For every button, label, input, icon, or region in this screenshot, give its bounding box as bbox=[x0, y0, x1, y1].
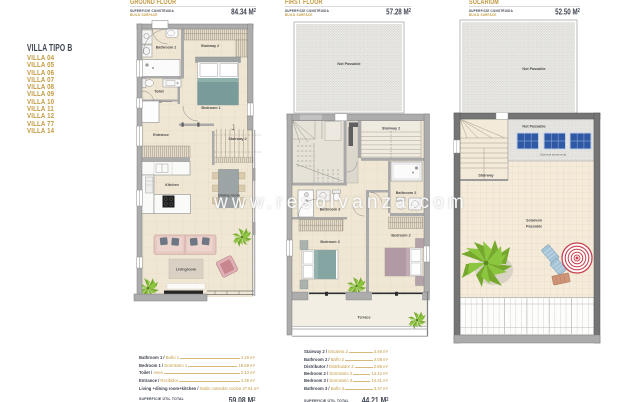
svg-text:Entrance: Entrance bbox=[153, 133, 169, 137]
svg-text:Passable: Passable bbox=[526, 225, 542, 229]
svg-text:Terrace: Terrace bbox=[357, 316, 370, 320]
svg-text:Not Passable: Not Passable bbox=[522, 67, 545, 71]
svg-text:Not Passable: Not Passable bbox=[522, 125, 545, 129]
svg-text:Kitchen: Kitchen bbox=[165, 183, 179, 187]
svg-text:Bedroom 2: Bedroom 2 bbox=[391, 234, 410, 238]
svg-text:Bedroom 1: Bedroom 1 bbox=[201, 106, 220, 110]
svg-text:Stairway 2: Stairway 2 bbox=[382, 127, 400, 131]
svg-text:Bathroom 2: Bathroom 2 bbox=[156, 46, 177, 50]
svg-text:Bedroom 3: Bedroom 3 bbox=[320, 240, 339, 244]
svg-text:Toilet: Toilet bbox=[154, 90, 164, 94]
svg-text:Not Passable: Not Passable bbox=[337, 62, 360, 66]
svg-text:Livingroom: Livingroom bbox=[176, 268, 197, 272]
svg-text:(Optional aerotermia): (Optional aerotermia) bbox=[540, 153, 566, 157]
svg-text:Stairway 2: Stairway 2 bbox=[228, 137, 246, 141]
svg-text:Solarium: Solarium bbox=[526, 219, 542, 223]
svg-text:Stairway: Stairway bbox=[478, 174, 494, 178]
svg-text:Stairway 2: Stairway 2 bbox=[201, 44, 219, 48]
